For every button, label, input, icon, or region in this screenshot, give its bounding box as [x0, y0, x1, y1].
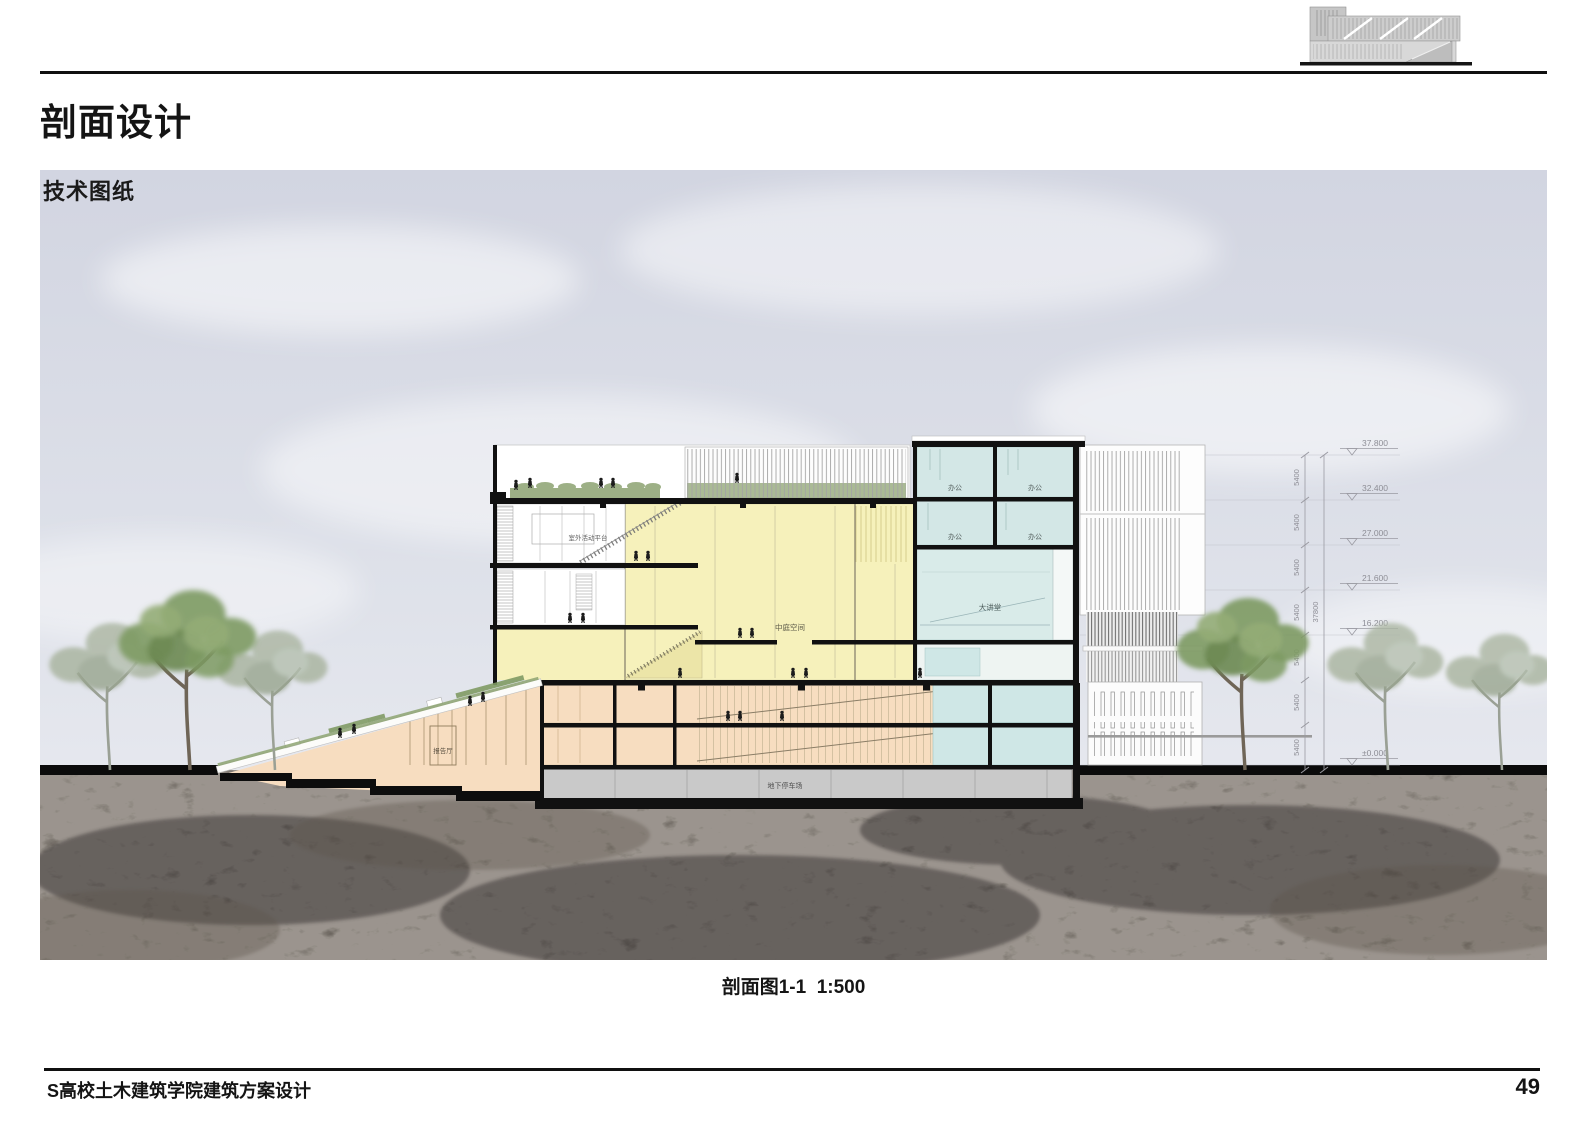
figure-caption: 剖面图1-1 1:500	[40, 972, 1547, 999]
building-elevation-thumbnail	[1300, 2, 1472, 72]
room-label-report-hall: 报告厅	[433, 746, 453, 755]
total-height-label: 37800	[1311, 602, 1320, 623]
room-label-terrace: 室外活动平台	[569, 533, 608, 542]
figure-section-label: 技术图纸	[43, 174, 135, 206]
building-section: 中庭空间 室外活动平台	[490, 436, 1085, 809]
room-label-office: 办公	[1028, 483, 1042, 492]
page-number: 49	[1516, 1074, 1540, 1100]
svg-text:32.400: 32.400	[1362, 483, 1388, 493]
room-label-office: 办公	[1028, 532, 1042, 541]
header-rule	[40, 71, 1547, 74]
svg-text:5400: 5400	[1292, 514, 1301, 531]
svg-text:5400: 5400	[1292, 739, 1301, 756]
thumbnail-svg	[1300, 2, 1472, 72]
svg-text:5400: 5400	[1292, 559, 1301, 576]
svg-text:21.600: 21.600	[1362, 573, 1388, 583]
svg-text:37.800: 37.800	[1362, 438, 1388, 448]
roof-louver-screen	[687, 449, 906, 498]
ground-line-right	[1075, 765, 1547, 775]
roof-terrace-level	[490, 445, 910, 502]
svg-text:5400: 5400	[1292, 469, 1301, 486]
svg-text:±0.000: ±0.000	[1362, 748, 1388, 758]
svg-text:5400: 5400	[1292, 604, 1301, 621]
room-label-lecture-hall: 大讲堂	[979, 602, 1002, 612]
footer-rule	[44, 1068, 1540, 1071]
room-label-parking: 地下停车场	[768, 781, 803, 790]
stair-shaft-hatch	[497, 571, 513, 623]
section-drawing-figure: 技术图纸	[40, 170, 1547, 960]
canopy-line	[1088, 735, 1312, 738]
section-drawing-svg: 中庭空间 室外活动平台	[40, 170, 1547, 960]
room-label-office: 办公	[948, 483, 962, 492]
room-label-office: 办公	[948, 532, 962, 541]
svg-text:27.000: 27.000	[1362, 528, 1388, 538]
footer-project-title: S高校土木建筑学院建筑方案设计	[47, 1077, 311, 1103]
svg-text:5400: 5400	[1292, 694, 1301, 711]
page-title: 剖面设计	[40, 92, 192, 146]
stair-shaft-hatch	[497, 506, 513, 561]
room-label-atrium: 中庭空间	[775, 622, 805, 632]
basement-parking: 地下停车场	[543, 769, 1072, 799]
